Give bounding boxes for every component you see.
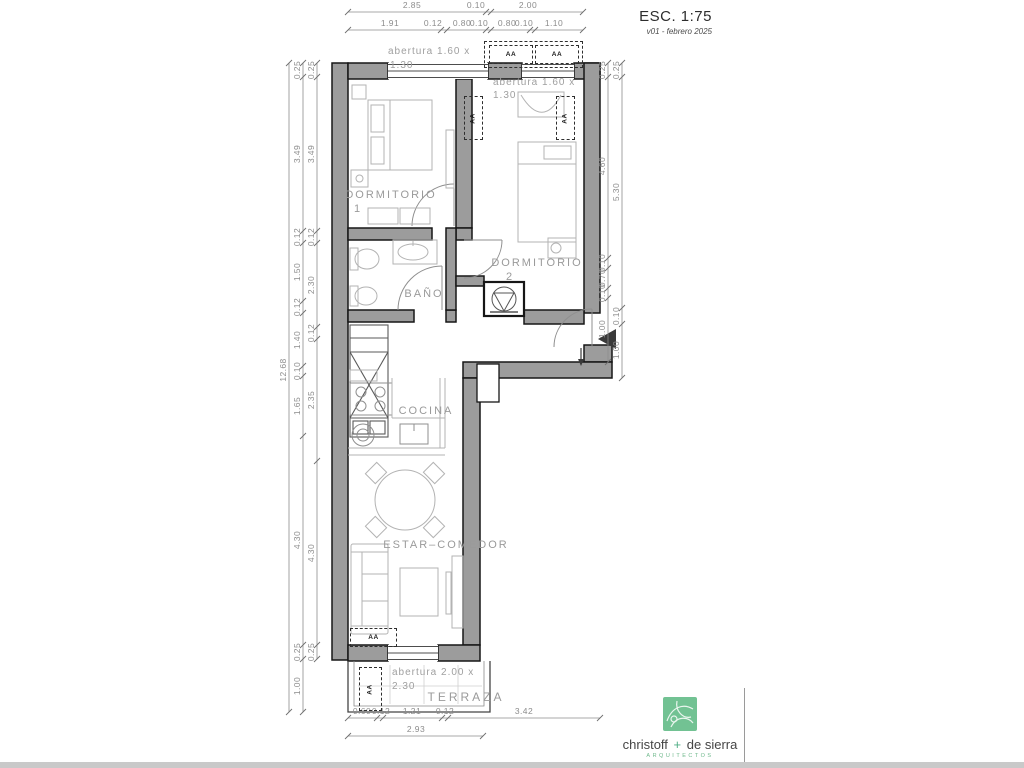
room-label-cocina: COCINA	[386, 405, 466, 417]
dimension-label: 2.93	[398, 723, 434, 735]
dimension-label: 1.10	[536, 17, 572, 29]
dimension-label: 0.25	[596, 53, 608, 87]
window-type-marker-label: AA	[506, 51, 516, 58]
firm-logo-mark	[663, 697, 697, 731]
dimension-label: 2.30	[305, 268, 317, 302]
dimension-label: 2.00	[510, 0, 546, 11]
dimension-label: 3.49	[305, 137, 317, 171]
firm-subtitle: ARQUITECTOS	[603, 753, 757, 759]
dimension-label: 0.12	[305, 316, 317, 350]
room-label-bano: BAÑO	[394, 288, 454, 300]
opening-label-window1-line2: 1.30	[390, 60, 413, 71]
window-type-marker: AA	[535, 45, 579, 64]
opening-label-window2-line1: abertura 1.60 x	[493, 77, 575, 88]
window-type-marker-label: AA	[368, 634, 378, 641]
dimension-label: 4.30	[291, 523, 303, 557]
opening-label-window2-line2: 1.30	[493, 90, 516, 101]
window-type-marker-label: AA	[562, 113, 569, 123]
room-number-dormitorio1: 1	[348, 203, 368, 215]
window-type-marker: AA	[359, 667, 382, 711]
title-block-divider	[744, 688, 745, 762]
dimension-label: 1.65	[291, 389, 303, 423]
firm-name-left: christoff	[623, 737, 668, 752]
firm-name-plus: +	[672, 737, 684, 752]
dimension-label: 1.21	[394, 705, 430, 717]
dimension-label: 1.50	[291, 255, 303, 289]
room-label-estar-comedor: ESTAR–COMEDOR	[381, 539, 511, 551]
dimension-label: 0.12	[305, 220, 317, 254]
dimension-label: 5.30	[610, 175, 622, 209]
dimension-label: 0.10	[596, 276, 608, 310]
dimension-label: 4.60	[596, 149, 608, 183]
dimension-label: 0.12	[427, 705, 463, 717]
opening-label-window1-line1: abertura 1.60 x	[388, 46, 470, 57]
dimension-label: 12.68	[277, 353, 289, 387]
room-label-terraza: TERRAZA	[416, 690, 516, 704]
opening-label-terraza-line1: abertura 2.00 x	[392, 667, 474, 678]
dimension-label: 0.12	[291, 290, 303, 324]
dimension-label: 1.00	[291, 669, 303, 703]
sheet-bottom-edge	[0, 762, 1024, 768]
room-label-dormitorio1: DORMITORIO	[336, 189, 446, 201]
dimension-label: 4.30	[305, 536, 317, 570]
window-type-marker-label: AA	[552, 51, 562, 58]
dimension-label: 0.25	[291, 635, 303, 669]
sheet-scale-title: ESC. 1:75	[620, 8, 712, 25]
dimension-label: 2.35	[305, 383, 317, 417]
dimension-label: 1.00	[610, 333, 622, 367]
dimension-label: 1.00	[596, 312, 608, 346]
room-label-dormitorio2: DORMITORIO	[482, 257, 592, 269]
logo-scribble-icon	[663, 697, 697, 731]
window-type-marker: AA	[350, 628, 397, 647]
dimension-lines	[0, 0, 1024, 768]
window-type-marker: AA	[464, 96, 483, 140]
firm-name: christoff + de sierra	[603, 737, 757, 752]
window-type-marker: AA	[489, 45, 533, 64]
room-number-dormitorio2: 2	[500, 271, 520, 283]
window-type-marker-label: AA	[367, 684, 374, 694]
dimension-label: 0.12	[291, 220, 303, 254]
dimension-label: 1.91	[372, 17, 408, 29]
dimension-label: 2.85	[394, 0, 430, 11]
dimension-label: 0.10	[610, 299, 622, 333]
dimension-label: 0.10	[291, 354, 303, 388]
window-type-marker: AA	[556, 96, 575, 140]
dimension-label: 3.42	[506, 705, 542, 717]
dimension-label: 0.25	[291, 53, 303, 87]
dimension-label: 0.10	[458, 0, 494, 11]
dimension-label: 0.25	[305, 53, 317, 87]
floor-plan-sheet: DORMITORIO 1 DORMITORIO 2 BAÑO COCINA ES…	[0, 0, 1024, 768]
dimension-label: 0.25	[610, 53, 622, 87]
window-type-marker-label: AA	[470, 113, 477, 123]
sheet-version: v01 - febrero 2025	[620, 27, 712, 36]
firm-name-right: de sierra	[687, 737, 738, 752]
dimension-label: 0.25	[305, 635, 317, 669]
dimension-label: 1.40	[291, 323, 303, 357]
opening-label-terraza-line2: 2.30	[392, 681, 415, 692]
dimension-label: 3.49	[291, 137, 303, 171]
